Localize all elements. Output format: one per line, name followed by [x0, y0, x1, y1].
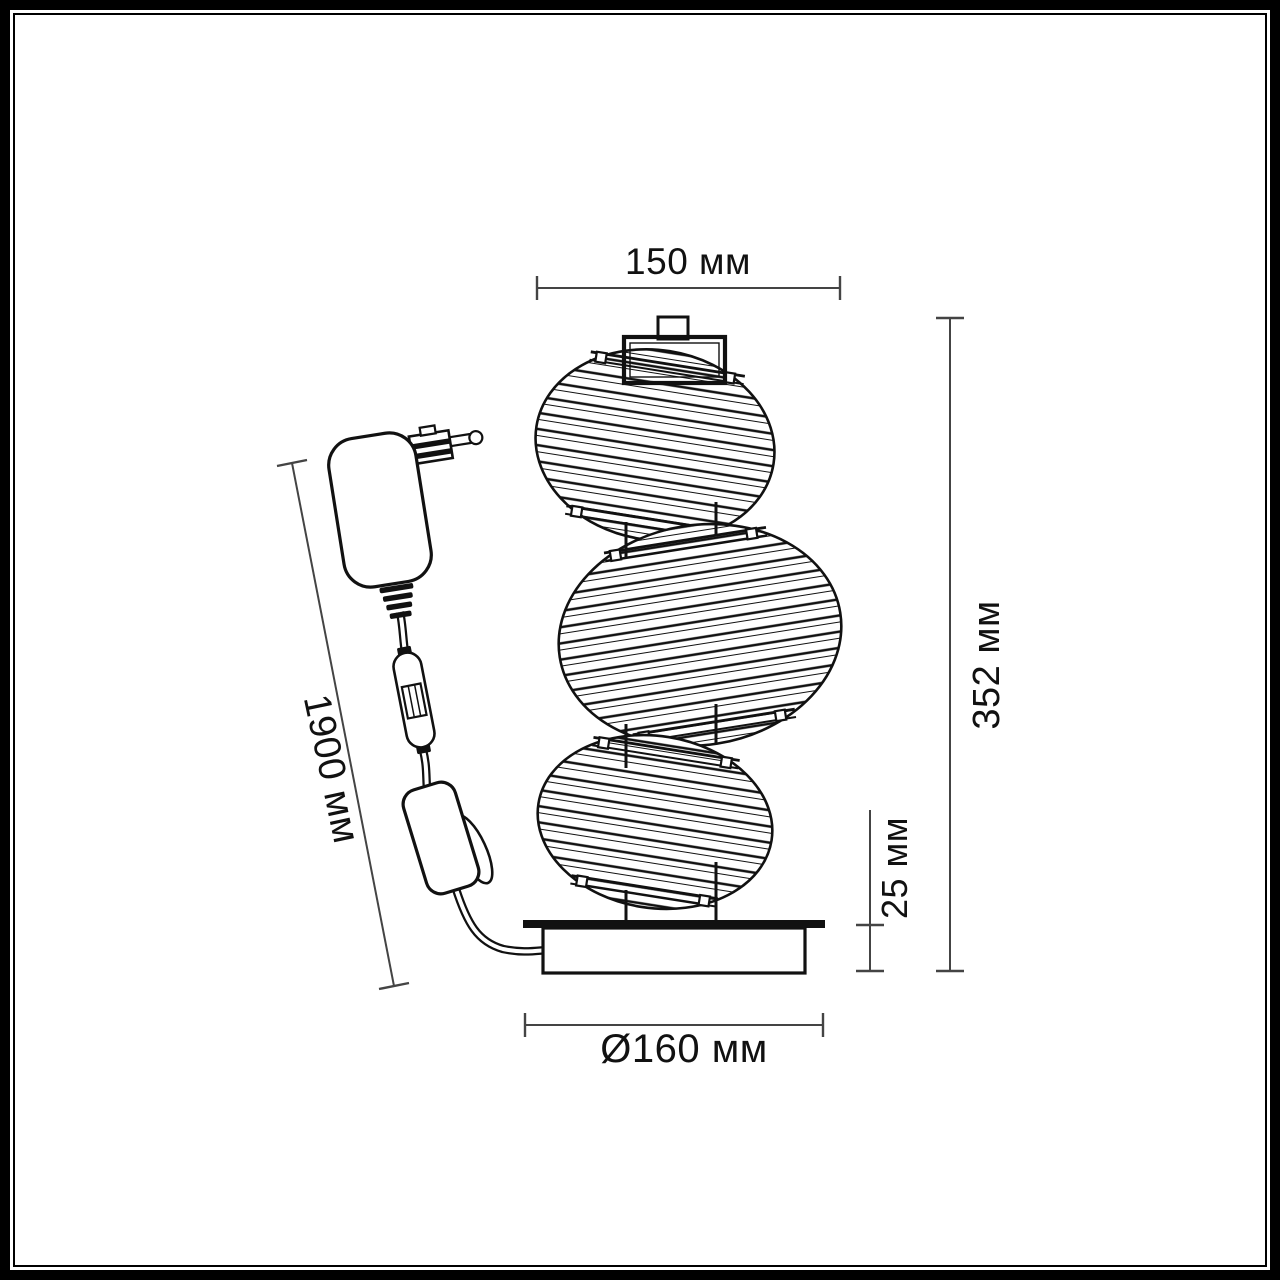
cord-switch	[399, 773, 501, 902]
base-body	[543, 928, 805, 973]
dimension-label-total-height: 352 мм	[966, 565, 1008, 765]
adapter-strain-relief	[379, 583, 418, 620]
dimension-label-base-height: 25 мм	[874, 788, 916, 948]
lamp-shade-middle	[543, 504, 858, 766]
plug-pin	[447, 430, 483, 448]
dimension-total-height	[936, 318, 964, 971]
dimension-label-top-width: 150 мм	[588, 241, 788, 283]
dimension-label-base-diameter: Ø160 мм	[564, 1028, 804, 1070]
base-plate	[523, 920, 825, 928]
power-adapter	[325, 418, 508, 625]
switch-body	[399, 778, 482, 897]
base	[523, 920, 825, 973]
technical-drawing-page: 150 мм 352 мм 25 мм Ø160 мм 1900 мм	[0, 0, 1280, 1280]
inline-connector	[390, 644, 438, 755]
lamp-shade-top	[522, 332, 789, 557]
lamp-shade-bottom	[525, 719, 785, 926]
lamp-dimension-drawing	[0, 0, 1280, 1280]
